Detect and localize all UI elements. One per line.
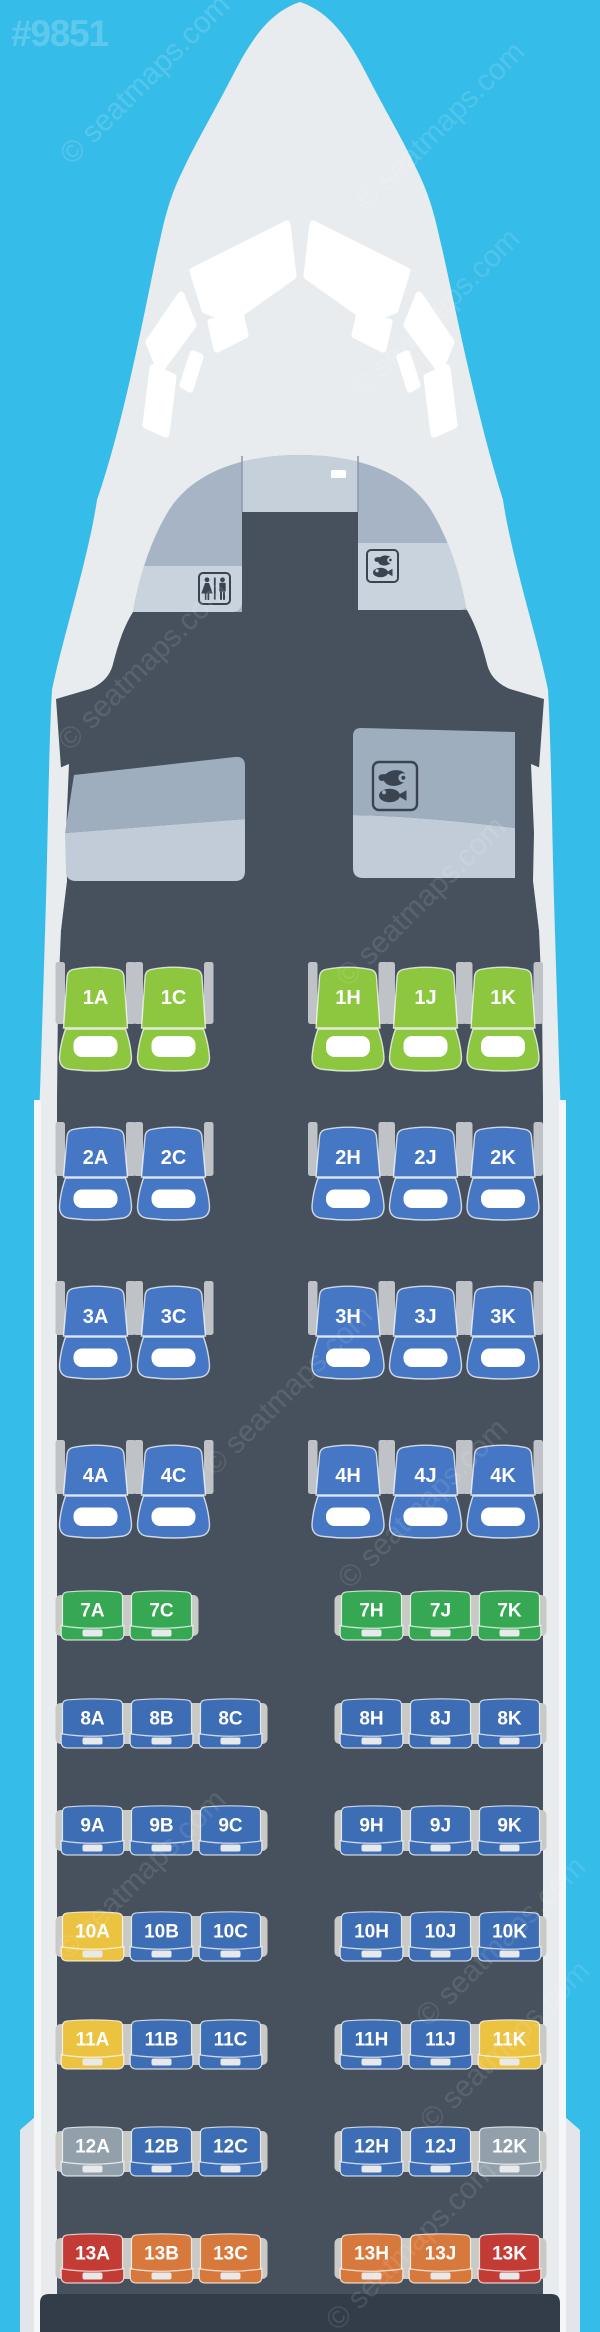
svg-text:7J: 7J bbox=[430, 1601, 451, 1622]
svg-text:1C: 1C bbox=[161, 987, 187, 1009]
svg-text:8H: 8H bbox=[359, 1709, 383, 1730]
svg-text:9C: 9C bbox=[218, 1816, 243, 1837]
svg-text:4A: 4A bbox=[83, 1465, 109, 1487]
svg-text:12K: 12K bbox=[492, 2137, 527, 2158]
svg-text:4C: 4C bbox=[161, 1465, 187, 1487]
svg-text:12C: 12C bbox=[213, 2137, 248, 2158]
svg-text:10B: 10B bbox=[144, 1922, 179, 1943]
svg-text:8K: 8K bbox=[497, 1709, 522, 1730]
svg-text:13K: 13K bbox=[492, 2244, 527, 2265]
svg-text:9H: 9H bbox=[359, 1816, 383, 1837]
svg-text:1H: 1H bbox=[335, 987, 361, 1009]
svg-text:3C: 3C bbox=[161, 1306, 187, 1328]
svg-text:11H: 11H bbox=[355, 2030, 389, 2051]
svg-text:13C: 13C bbox=[213, 2244, 248, 2265]
svg-text:7K: 7K bbox=[497, 1601, 522, 1622]
svg-text:#9851: #9851 bbox=[11, 13, 109, 54]
svg-text:7C: 7C bbox=[149, 1601, 174, 1622]
svg-text:13B: 13B bbox=[144, 2244, 179, 2265]
svg-text:10C: 10C bbox=[213, 1922, 248, 1943]
svg-text:2K: 2K bbox=[490, 1147, 516, 1169]
svg-text:10J: 10J bbox=[425, 1922, 457, 1943]
svg-text:11J: 11J bbox=[425, 2030, 456, 2051]
svg-text:13A: 13A bbox=[75, 2244, 110, 2265]
svg-text:2C: 2C bbox=[161, 1147, 187, 1169]
svg-text:3A: 3A bbox=[83, 1306, 109, 1328]
svg-text:8B: 8B bbox=[149, 1709, 173, 1730]
svg-text:2A: 2A bbox=[83, 1147, 109, 1169]
svg-text:12H: 12H bbox=[354, 2137, 389, 2158]
svg-text:4H: 4H bbox=[335, 1465, 361, 1487]
svg-text:7A: 7A bbox=[80, 1601, 105, 1622]
svg-text:3K: 3K bbox=[490, 1306, 516, 1328]
svg-text:2J: 2J bbox=[414, 1147, 436, 1169]
svg-text:8J: 8J bbox=[430, 1709, 451, 1730]
svg-text:10H: 10H bbox=[354, 1922, 389, 1943]
svg-text:11C: 11C bbox=[214, 2030, 248, 2051]
svg-text:1J: 1J bbox=[414, 987, 436, 1009]
svg-text:9A: 9A bbox=[80, 1816, 105, 1837]
svg-text:1K: 1K bbox=[490, 987, 516, 1009]
svg-text:12J: 12J bbox=[425, 2137, 457, 2158]
svg-text:12B: 12B bbox=[144, 2137, 179, 2158]
svg-text:3J: 3J bbox=[414, 1306, 436, 1328]
svg-text:8C: 8C bbox=[218, 1709, 243, 1730]
svg-text:11A: 11A bbox=[76, 2030, 110, 2051]
svg-text:2H: 2H bbox=[335, 1147, 361, 1169]
svg-text:1A: 1A bbox=[83, 987, 109, 1009]
svg-text:4K: 4K bbox=[490, 1465, 516, 1487]
svg-text:11B: 11B bbox=[145, 2030, 179, 2051]
svg-text:9J: 9J bbox=[430, 1816, 451, 1837]
svg-text:9K: 9K bbox=[497, 1816, 522, 1837]
svg-text:7H: 7H bbox=[359, 1601, 383, 1622]
svg-text:8A: 8A bbox=[80, 1709, 105, 1730]
svg-text:12A: 12A bbox=[75, 2137, 110, 2158]
